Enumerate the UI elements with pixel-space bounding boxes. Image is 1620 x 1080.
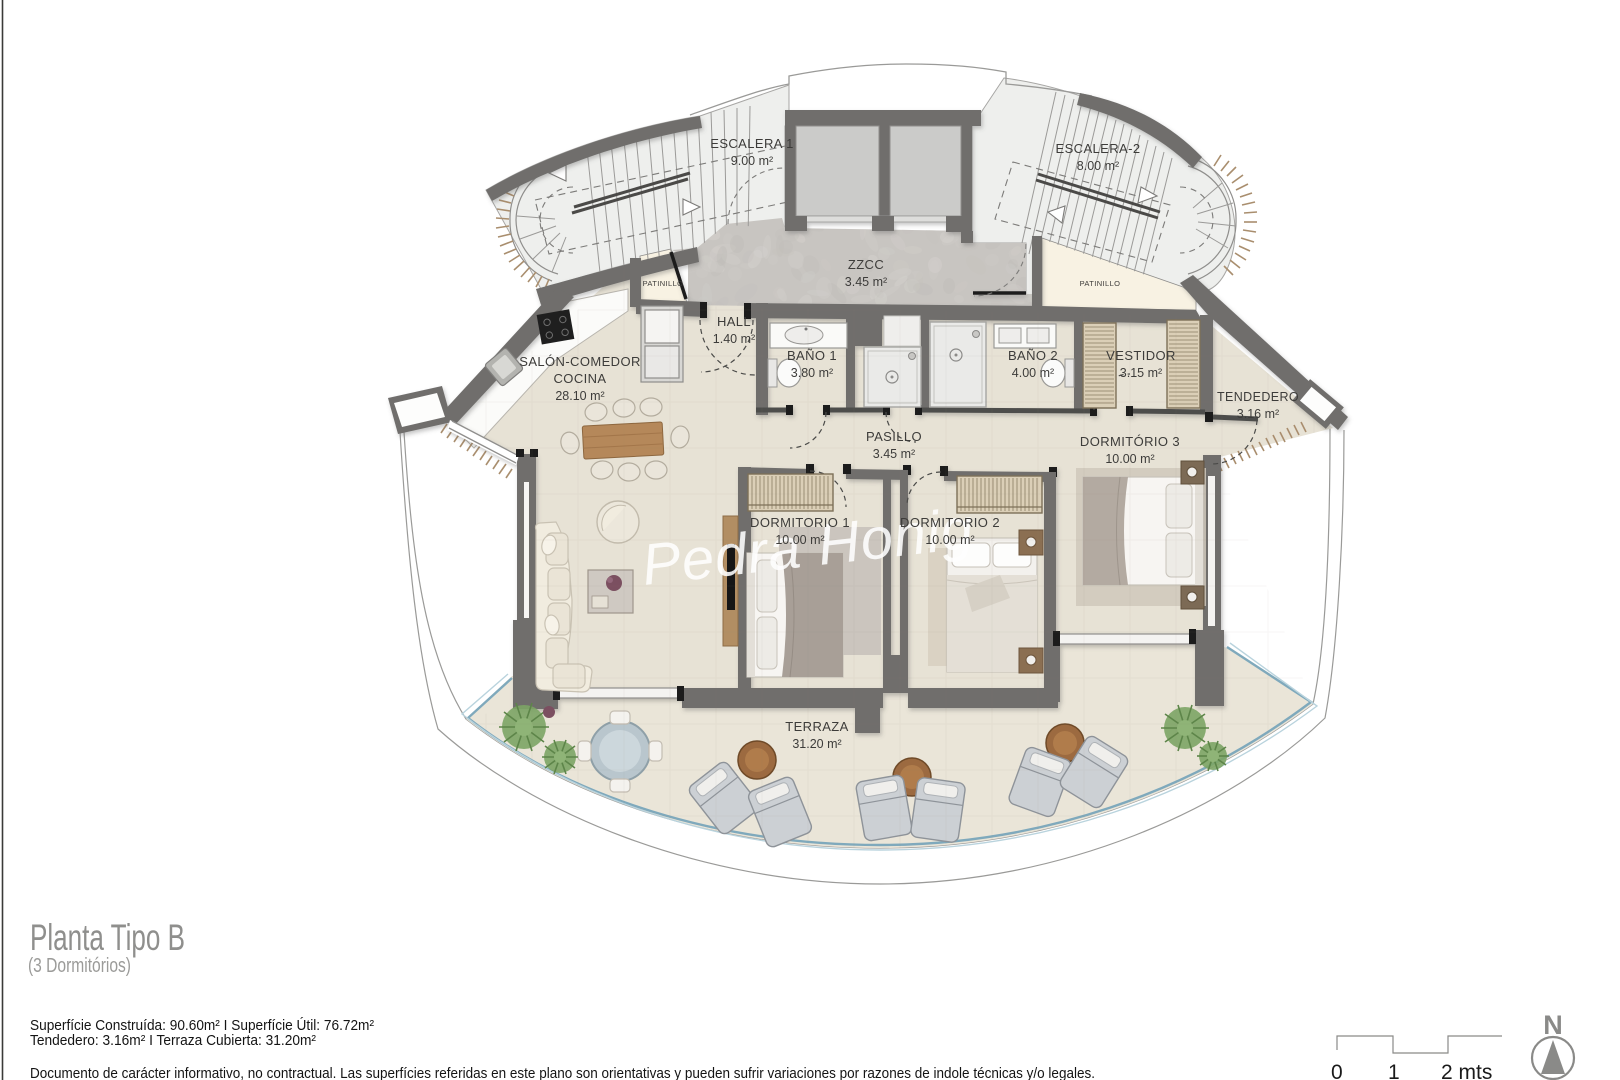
svg-text:ESCALERA-2: ESCALERA-2 <box>1056 141 1141 156</box>
svg-text:2 mts: 2 mts <box>1441 1061 1492 1080</box>
svg-text:VESTIDOR: VESTIDOR <box>1106 348 1176 363</box>
svg-text:ESCALERA 1: ESCALERA 1 <box>710 136 794 151</box>
svg-text:PATINILLO: PATINILLO <box>1080 279 1121 288</box>
svg-text:9.00 m²: 9.00 m² <box>731 154 773 168</box>
svg-text:10.00 m²: 10.00 m² <box>775 533 824 547</box>
svg-text:28.10 m²: 28.10 m² <box>555 389 604 403</box>
svg-text:10.00 m²: 10.00 m² <box>1105 452 1154 466</box>
svg-text:3.16 m²: 3.16 m² <box>1237 407 1279 421</box>
svg-text:DORMITORIO 2: DORMITORIO 2 <box>900 515 1000 530</box>
svg-text:DORMITORIO 1: DORMITORIO 1 <box>750 515 850 530</box>
svg-text:8.00 m²: 8.00 m² <box>1077 159 1119 173</box>
svg-text:DORMITÓRIO 3: DORMITÓRIO 3 <box>1080 434 1180 449</box>
svg-text:HALL: HALL <box>717 314 751 329</box>
svg-text:0: 0 <box>1331 1061 1343 1080</box>
svg-text:Documento de carácter informat: Documento de carácter informativo, no co… <box>30 1066 1095 1080</box>
svg-text:3.45 m²: 3.45 m² <box>845 275 887 289</box>
svg-text:4.00 m²: 4.00 m² <box>1012 366 1054 380</box>
svg-text:TENDEDERO: TENDEDERO <box>1217 390 1299 404</box>
svg-text:(3 Dormitórios): (3 Dormitórios) <box>28 955 131 977</box>
svg-text:10.00 m²: 10.00 m² <box>925 533 974 547</box>
svg-text:1: 1 <box>1388 1061 1400 1080</box>
svg-text:31.20 m²: 31.20 m² <box>792 737 841 751</box>
svg-text:SALÓN-COMEDOR: SALÓN-COMEDOR <box>519 354 641 369</box>
svg-text:Planta Tipo B: Planta Tipo B <box>30 917 185 958</box>
svg-text:BAÑO 2: BAÑO 2 <box>1008 348 1058 363</box>
svg-text:Tendedero: 3.16m² I Terraza Cu: Tendedero: 3.16m² I Terraza Cubierta: 31… <box>30 1033 316 1049</box>
svg-text:COCINA: COCINA <box>554 371 607 386</box>
svg-text:ZZCC: ZZCC <box>848 257 884 272</box>
svg-text:3.80 m²: 3.80 m² <box>791 366 833 380</box>
svg-text:1.40 m²: 1.40 m² <box>713 332 755 346</box>
svg-text:3.45 m²: 3.45 m² <box>873 447 915 461</box>
svg-text:N: N <box>1543 1010 1563 1040</box>
svg-text:3.15 m²: 3.15 m² <box>1120 366 1162 380</box>
svg-text:Superfície Construída: 90.60m²: Superfície Construída: 90.60m² I Superfí… <box>30 1017 374 1034</box>
svg-text:PASILLO: PASILLO <box>866 429 922 444</box>
svg-text:PATINILLO: PATINILLO <box>643 279 684 288</box>
svg-text:TERRAZA: TERRAZA <box>785 719 848 734</box>
svg-text:BAÑO 1: BAÑO 1 <box>787 348 837 363</box>
